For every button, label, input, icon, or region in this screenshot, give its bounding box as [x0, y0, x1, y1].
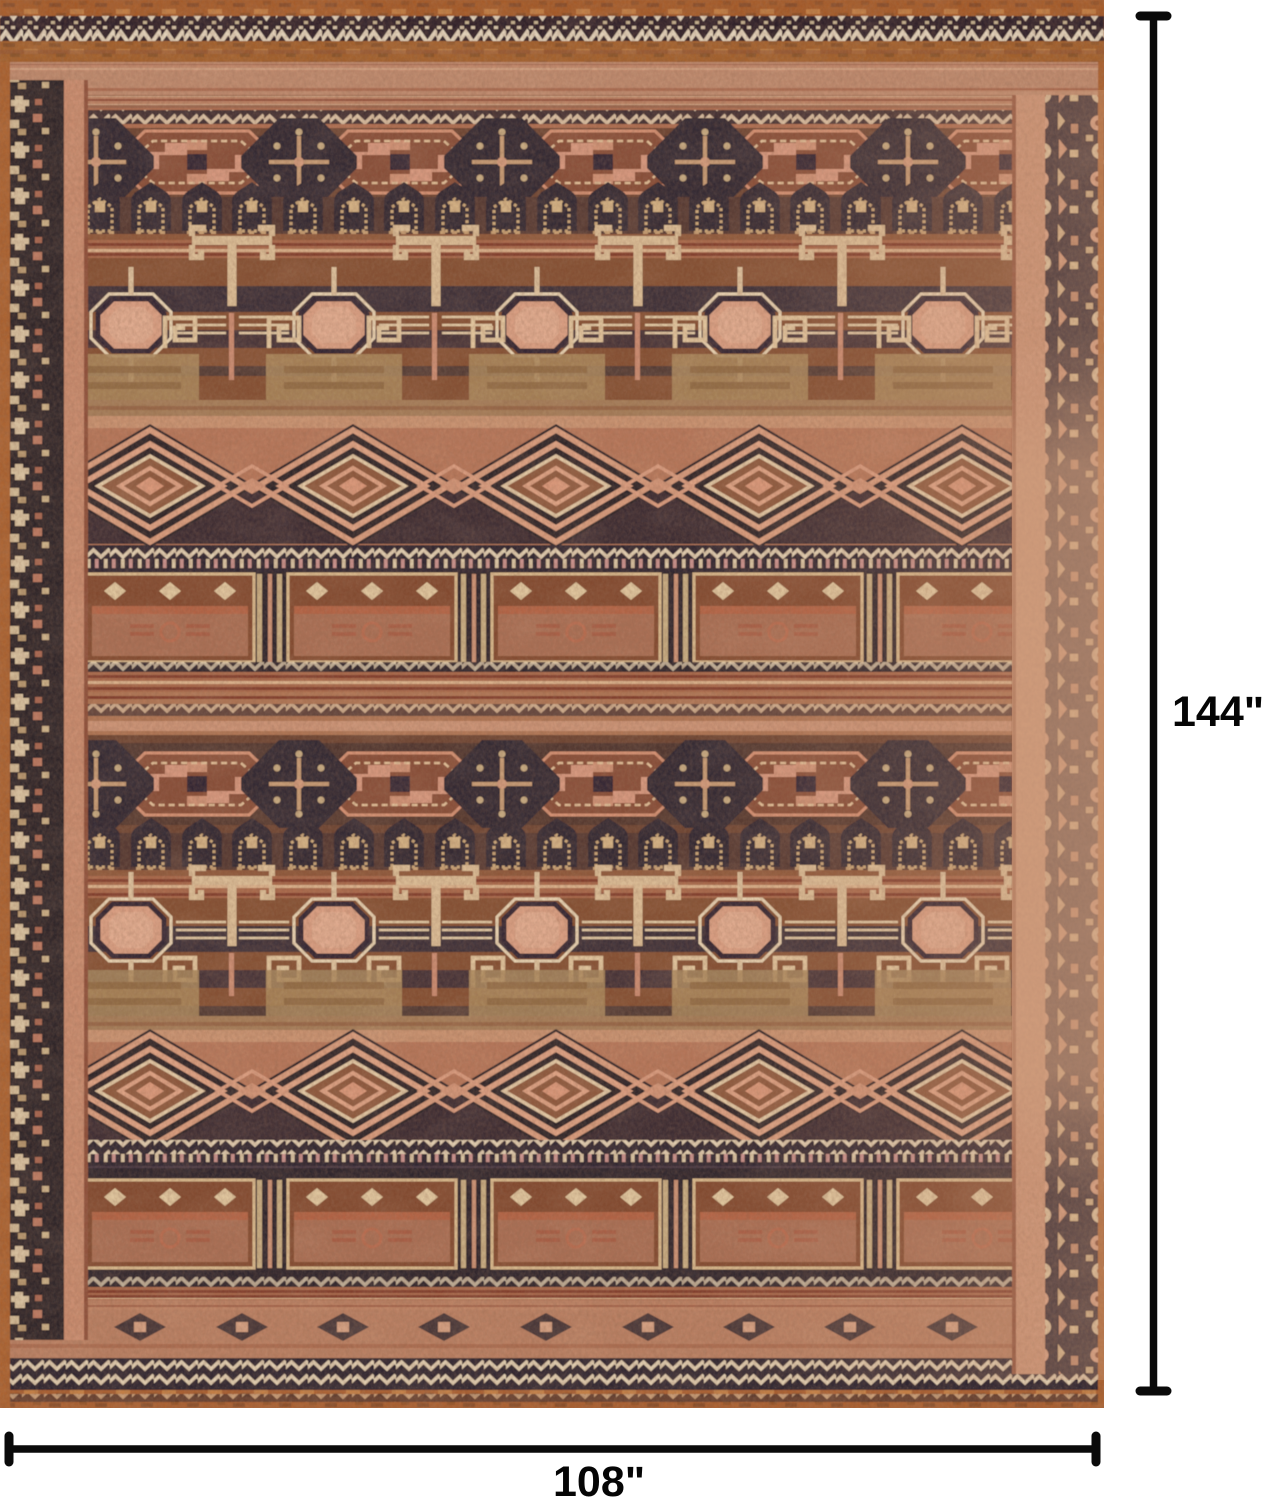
svg-text:108": 108" — [553, 1458, 645, 1500]
svg-text:144": 144" — [1172, 688, 1264, 736]
